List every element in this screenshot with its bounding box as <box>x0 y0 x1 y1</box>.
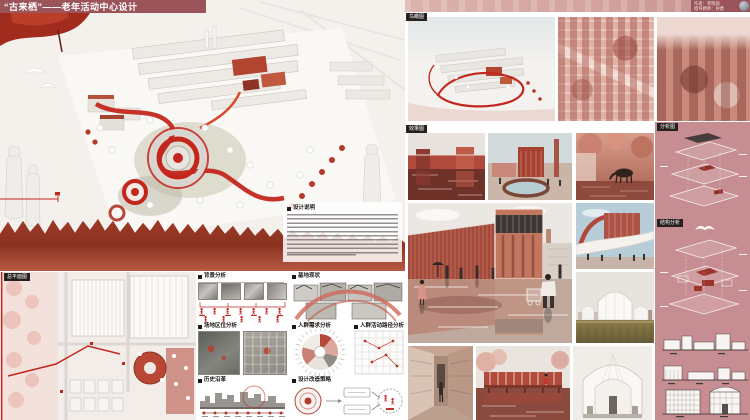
section-needs: 人群需求分析 <box>292 323 331 330</box>
pink-plan-aerial <box>558 17 654 121</box>
path-matrix <box>354 330 404 375</box>
history-timeline <box>198 383 287 419</box>
bullet-icon <box>354 325 358 329</box>
section-site-status: 基地现状 <box>292 273 320 280</box>
needs-radial-chart <box>294 329 350 376</box>
aerial-section-label: 鸟瞰图 <box>406 13 427 21</box>
axon-section-label: 分析图 <box>657 123 678 131</box>
photo-thumb <box>244 283 264 300</box>
design-notes-text-last <box>287 254 356 258</box>
elevation-drawings <box>658 330 748 418</box>
bullet-icon <box>292 275 296 279</box>
alley-render <box>408 346 473 420</box>
title-bar: “古来栖”——老年活动中心设计 <box>0 0 206 13</box>
photo-thumb <box>221 283 241 300</box>
analysis-panel: 背景分析 场地区位分析 历史沿革 <box>196 272 405 420</box>
white-tent-render <box>576 272 654 343</box>
avatar <box>739 1 749 11</box>
bird-icon <box>692 221 718 233</box>
renders-section-label: 效果图 <box>406 125 427 133</box>
bullet-icon <box>198 275 202 279</box>
photo-thumb <box>267 283 287 300</box>
pie-center <box>314 346 326 358</box>
roof-slabs <box>72 276 188 338</box>
aerial-masterplan-render <box>408 17 555 121</box>
plaza-fountain-render <box>488 133 572 200</box>
canopy-plaza-render <box>576 203 654 269</box>
bullet-icon <box>198 379 202 383</box>
bullet-icon <box>292 379 296 383</box>
page-title: “古来栖”——老年活动中心设计 <box>4 0 138 13</box>
section-background: 背景分析 <box>198 273 226 280</box>
design-notes-box: 设计说明 <box>283 202 402 262</box>
advisor-credit: 指导教师：孙勇 <box>694 6 737 11</box>
section-location: 场地区位分析 <box>198 323 237 330</box>
bullet-icon <box>287 207 291 211</box>
presentation-board: “古来栖”——老年活动中心设计 设计说明 <box>0 0 750 420</box>
red-garden-zone <box>166 348 194 414</box>
section-history: 历史沿革 <box>198 377 226 384</box>
bullet-icon <box>198 325 202 329</box>
design-notes-title: 设计说明 <box>293 205 315 212</box>
location-map <box>198 331 240 375</box>
structure-axon-diagram <box>658 234 748 326</box>
bullet-icon <box>292 325 296 329</box>
photo-thumb <box>198 283 218 300</box>
design-notes-header: 设计说明 <box>287 205 398 212</box>
exploded-axon-diagram <box>658 132 748 218</box>
design-notes-text <box>287 214 398 254</box>
site-plan-label: 总平面图 <box>4 273 30 281</box>
main-street-render <box>408 203 572 343</box>
structure-section-label: 结构分析 <box>657 219 683 227</box>
satellite-map <box>243 331 287 375</box>
strategy-flow <box>292 384 404 418</box>
credits-box: 作者：李晓雨 指导教师：孙勇 <box>691 0 750 12</box>
white-interior-render <box>573 346 652 420</box>
section-strategy: 设计改造策略 <box>292 377 331 384</box>
courtyard-animal-render <box>576 133 654 200</box>
site-plan-drawing <box>0 272 196 420</box>
section-paths: 人群活动路径分析 <box>354 323 404 330</box>
red-pavilion-render <box>476 346 570 420</box>
site-plan: 总平面图 <box>0 272 196 420</box>
red-figure-rows <box>198 308 287 323</box>
pink-render <box>657 17 750 121</box>
site-status-collage <box>292 281 404 322</box>
waterfront-render <box>408 133 485 200</box>
